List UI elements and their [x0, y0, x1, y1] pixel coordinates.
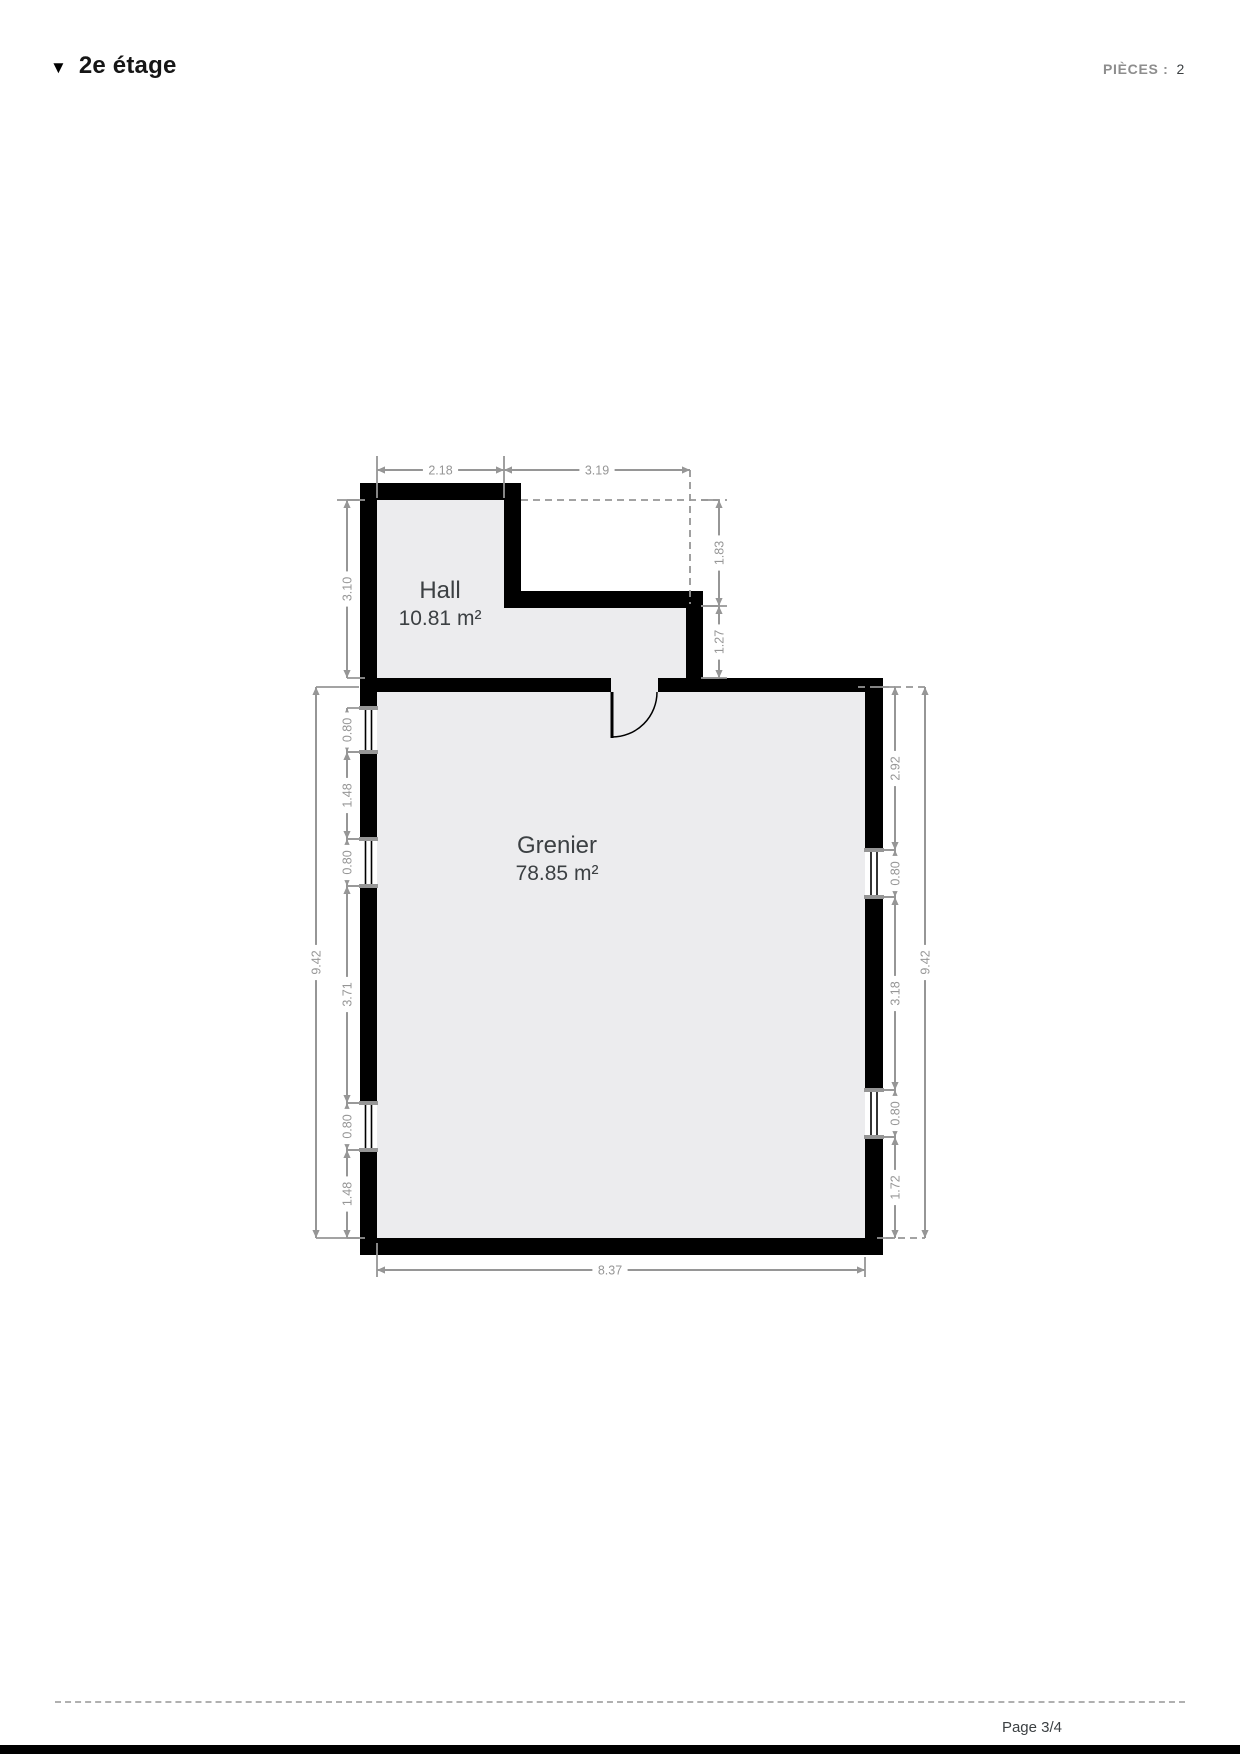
wall [360, 483, 521, 500]
dimension-label: 3.19 [585, 464, 609, 478]
dimension-label: 8.37 [598, 1264, 622, 1278]
dimension: 8.37 [377, 1262, 865, 1278]
dimension-label: 9.42 [310, 950, 324, 974]
room-area-label: 78.85 m² [516, 862, 599, 885]
dimension-label: 3.10 [341, 577, 355, 601]
wall [360, 483, 377, 708]
dimension: 1.27 [701, 606, 727, 678]
wall [504, 591, 703, 608]
room-name-label: Grenier [517, 832, 597, 859]
dimension: 2.18 [377, 462, 504, 478]
bottom-bar [0, 1745, 1240, 1754]
dimension-label: 2.18 [428, 464, 452, 478]
wall [360, 752, 377, 839]
window [864, 848, 884, 899]
dimension-label: 9.42 [919, 950, 933, 974]
footer-divider [55, 1701, 1185, 1703]
dimension: 9.42 [917, 687, 933, 1238]
wall [865, 897, 883, 1090]
wall [686, 608, 703, 678]
dimension-label: 2.92 [889, 756, 903, 780]
window [359, 1101, 378, 1152]
dimension-label: 3.71 [341, 982, 355, 1006]
wall [658, 678, 883, 692]
dimension-label: 1.27 [713, 630, 727, 654]
grenier-floor [377, 692, 865, 1238]
dimension-label: 1.48 [341, 1182, 355, 1206]
wall [360, 886, 377, 1103]
door-opening-floor [611, 678, 658, 692]
dimension-label: 1.72 [889, 1175, 903, 1199]
dimension-label: 3.18 [889, 981, 903, 1005]
dimension-label: 0.80 [889, 861, 903, 885]
window [864, 1088, 884, 1139]
dimension: 3.19 [504, 462, 690, 478]
dimension: 9.42 [308, 687, 324, 1238]
dimension-label: 0.80 [341, 718, 355, 742]
page-number: Page 3/4 [1002, 1719, 1062, 1736]
dimension-label: 0.80 [889, 1101, 903, 1125]
window [359, 706, 378, 754]
dimension: 1.83 [701, 500, 727, 606]
room-label: Grenier78.85 m² [516, 832, 599, 885]
dimension-label: 1.83 [713, 541, 727, 565]
window [359, 837, 378, 888]
room-name-label: Hall [419, 577, 460, 604]
wall [360, 1238, 883, 1255]
wall [377, 678, 611, 692]
wall [504, 500, 521, 591]
floor-plan: 2.183.198.373.101.831.279.420.801.480.80… [0, 0, 1240, 1754]
dimension-label: 1.48 [341, 783, 355, 807]
dimension-label: 0.80 [341, 1114, 355, 1138]
room-area-label: 10.81 m² [399, 607, 482, 630]
dimension-label: 0.80 [341, 850, 355, 874]
wall [865, 678, 883, 850]
